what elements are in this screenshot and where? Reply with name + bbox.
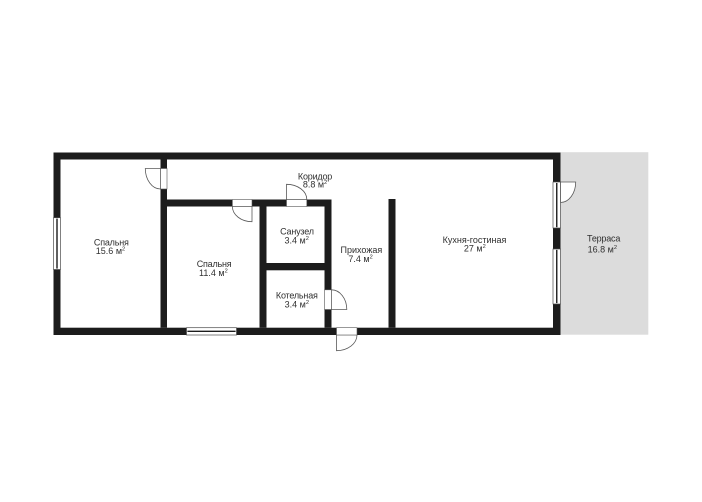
svg-text:7.4 м2: 7.4 м2 (348, 254, 372, 264)
svg-text:3.4 м2: 3.4 м2 (285, 235, 309, 245)
svg-text:15.6 м2: 15.6 м2 (96, 246, 125, 256)
svg-text:27 м2: 27 м2 (464, 244, 486, 254)
svg-text:3.4 м2: 3.4 м2 (285, 299, 309, 309)
svg-text:8.8 м2: 8.8 м2 (303, 180, 327, 190)
svg-text:Терраса: Терраса (587, 234, 620, 244)
svg-text:11.4 м2: 11.4 м2 (199, 268, 228, 278)
svg-text:16.8 м2: 16.8 м2 (588, 244, 617, 254)
